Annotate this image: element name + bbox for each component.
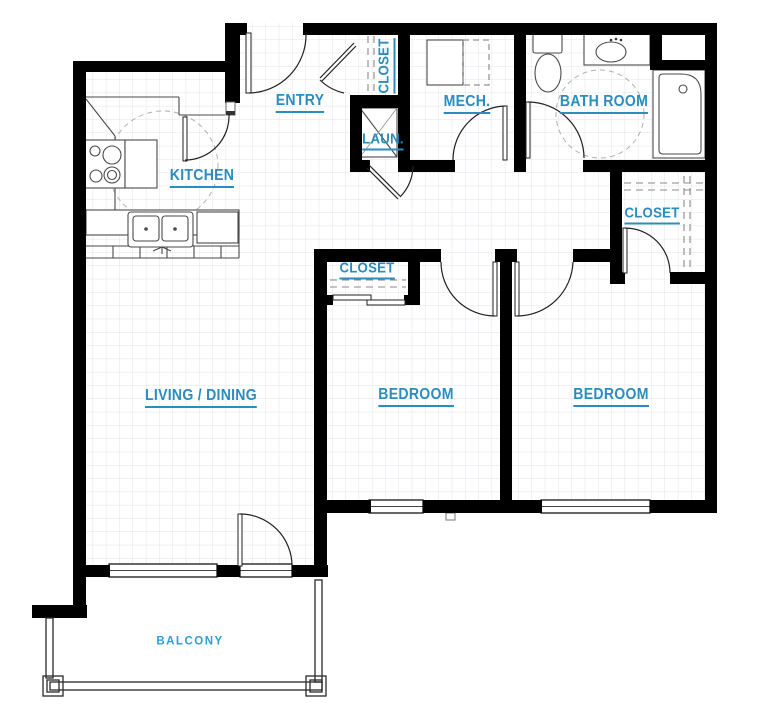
- room-label-balcony: BALCONY: [156, 636, 223, 648]
- floor-plan-drawing: [0, 0, 773, 718]
- room-label-left-closet: CLOSET: [339, 261, 394, 280]
- hose-bib-icon: [446, 513, 455, 520]
- room-label-bedroom-left: BEDROOM: [378, 387, 453, 407]
- room-label-living-dining: LIVING / DINING: [145, 388, 257, 408]
- room-label-kitchen: KITCHEN: [170, 168, 234, 188]
- room-label-bathroom: BATH ROOM: [560, 94, 648, 114]
- room-label-entry: ENTRY: [276, 93, 325, 113]
- dishwasher-icon: [197, 212, 238, 243]
- door-stop-icon: [226, 102, 235, 115]
- bathtub-icon: [653, 70, 705, 158]
- stove-icon: [85, 140, 157, 188]
- floor-plan: KITCHEN ENTRY CLOSET LAUN. MECH. BATH RO…: [0, 0, 773, 718]
- room-label-laundry: LAUN.: [362, 132, 404, 151]
- room-label-bedroom-right: BEDROOM: [573, 387, 648, 407]
- vanity-sink-icon: [584, 34, 650, 65]
- room-label-entry-closet: CLOSET: [377, 38, 396, 93]
- toilet-icon: [533, 34, 562, 92]
- room-label-right-closet: CLOSET: [624, 206, 679, 225]
- room-label-mech: MECH.: [444, 94, 491, 114]
